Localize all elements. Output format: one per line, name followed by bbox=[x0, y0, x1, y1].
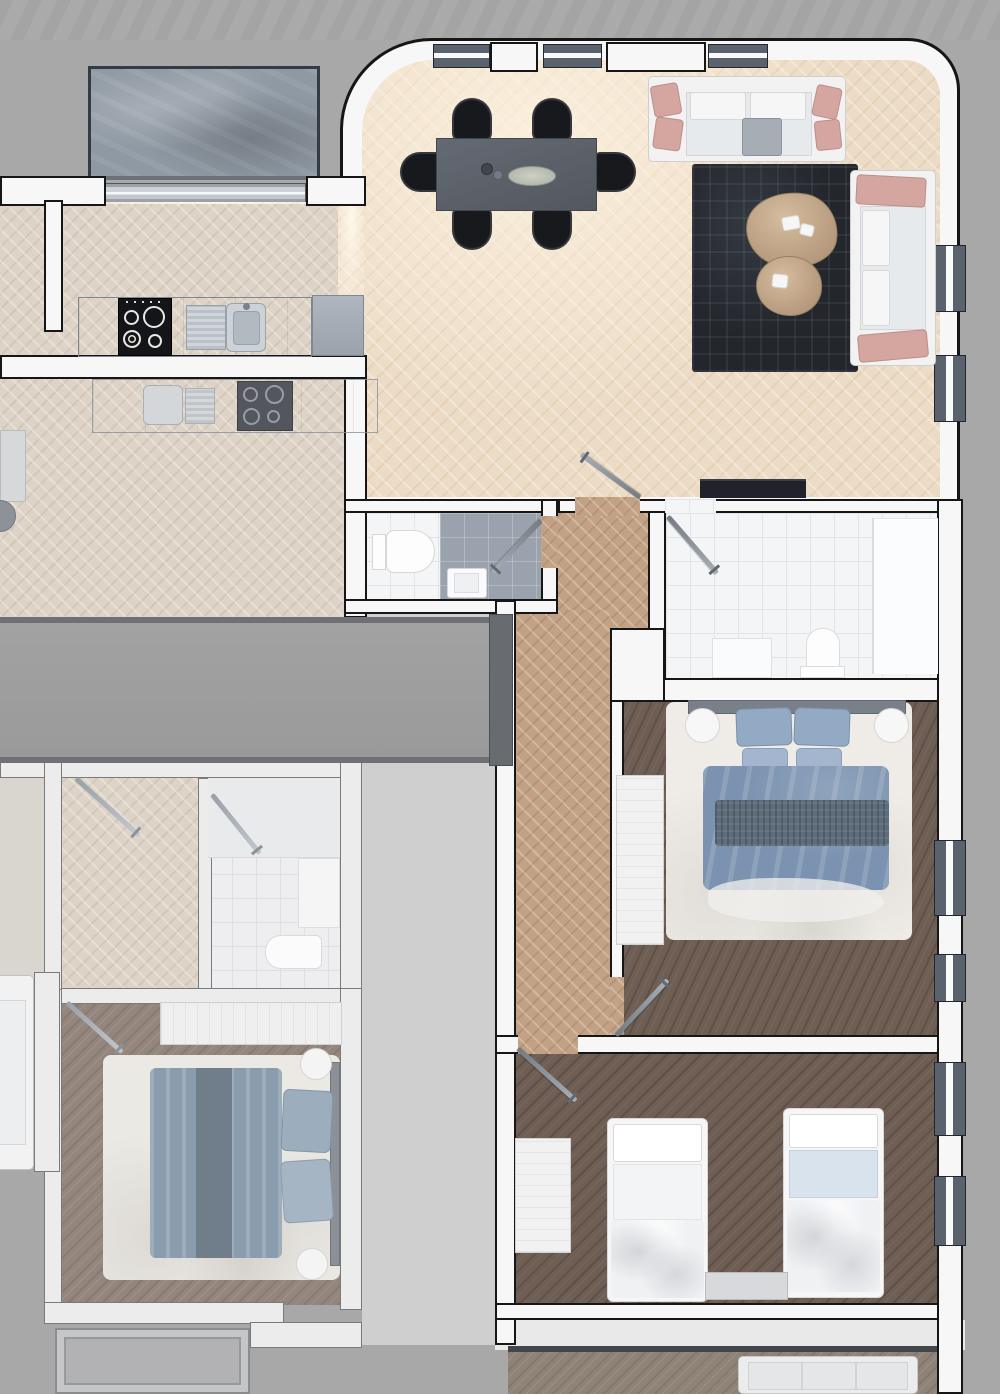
kids-nightstand bbox=[705, 1272, 788, 1300]
kids-bed-right-blanket bbox=[787, 1200, 880, 1292]
bath-vanity bbox=[712, 638, 772, 678]
bottom-unit-sofa-cushions bbox=[748, 1362, 908, 1390]
terrace-stone-floor bbox=[88, 66, 320, 180]
master-foot-sheet bbox=[708, 878, 884, 922]
wall-kids-south bbox=[495, 1303, 962, 1320]
coffee-table-decor-3 bbox=[771, 273, 788, 289]
wall-hall-corner bbox=[610, 628, 665, 702]
floor-plan-canvas bbox=[0, 0, 1000, 1394]
left-nightstand-top bbox=[300, 1048, 332, 1080]
sofa-top-pillow-left-1 bbox=[649, 82, 682, 118]
corridor-floor bbox=[0, 622, 493, 758]
master-knit-throw bbox=[715, 800, 889, 846]
wall-wc-top bbox=[344, 499, 558, 513]
master-window-2 bbox=[934, 954, 966, 1002]
sofa-right-cushion-2 bbox=[862, 270, 890, 326]
dining-chair-bottom-2 bbox=[532, 206, 572, 250]
left-unit-side-floor bbox=[0, 778, 44, 990]
wall-wc-bottom bbox=[344, 599, 558, 614]
left-bath-vanity bbox=[298, 858, 340, 928]
dining-chair-top-2 bbox=[532, 98, 572, 142]
dining-chair-bottom-1 bbox=[452, 206, 492, 250]
wc-washbasin-inner bbox=[454, 573, 479, 593]
serving-platter bbox=[508, 166, 556, 186]
kitchen-glass-wall bbox=[105, 183, 306, 204]
top-wall-pier-1 bbox=[490, 42, 538, 72]
left-wall-sofa-side bbox=[34, 972, 60, 1172]
left-bath-toilet bbox=[265, 935, 322, 969]
sofa-top-pillow-right-2 bbox=[814, 119, 843, 152]
master-nightstand-left bbox=[685, 708, 720, 743]
left-bed-pillow-2 bbox=[280, 1158, 334, 1223]
left-sink-basin bbox=[143, 385, 183, 425]
kids-bed-left-sheet bbox=[613, 1164, 702, 1220]
left-wall-bath-east bbox=[340, 762, 362, 990]
terrace-rail bbox=[88, 176, 320, 180]
master-wardrobe bbox=[616, 775, 664, 945]
corridor-wall-bottom bbox=[0, 757, 493, 763]
sofa-right-cushion-1 bbox=[862, 210, 890, 266]
sofa-top-throw bbox=[742, 118, 782, 156]
wc-toilet-bowl bbox=[386, 530, 435, 573]
tv-sideboard bbox=[700, 479, 806, 498]
kids-bed-left-blanket bbox=[611, 1220, 704, 1298]
bathtub-panel bbox=[872, 518, 938, 674]
sink-drainboard bbox=[186, 305, 226, 350]
sink-basin-inner bbox=[233, 311, 260, 345]
hallway-floor-main bbox=[516, 610, 610, 1037]
burner-3 bbox=[123, 330, 141, 348]
top-wall-pier-2 bbox=[606, 42, 706, 72]
wall-corner-block bbox=[306, 176, 366, 206]
burner-2 bbox=[143, 306, 165, 328]
kitchen-cooktop bbox=[118, 298, 172, 356]
left-bed-duvet-band bbox=[196, 1068, 232, 1258]
sink-faucet bbox=[243, 303, 250, 310]
kids-bed-right-blanket-blue bbox=[789, 1150, 878, 1198]
kids-dresser bbox=[515, 1138, 571, 1253]
master-pillow-1 bbox=[735, 707, 792, 747]
wall-bath-south bbox=[648, 678, 962, 702]
wall-east bbox=[937, 499, 963, 1394]
left-edge-cabinet bbox=[0, 430, 26, 502]
wall-kitchen-divider bbox=[0, 355, 367, 379]
cooktop-knobs bbox=[126, 301, 128, 303]
dining-chair-top-1 bbox=[452, 98, 492, 142]
living-window-east-2 bbox=[934, 355, 966, 422]
master-window-1 bbox=[934, 840, 966, 916]
wc-door-opening bbox=[541, 516, 558, 568]
kids-bed-right-pillow bbox=[789, 1114, 878, 1148]
left-sink-drainboard bbox=[185, 388, 215, 424]
left-wall-bed-east bbox=[340, 988, 362, 1310]
kids-bed-left-pillow bbox=[613, 1124, 702, 1162]
wall-t-stem bbox=[44, 200, 63, 332]
burner-4 bbox=[148, 334, 162, 348]
living-window-east-1 bbox=[934, 245, 966, 312]
living-window-top-3 bbox=[708, 44, 768, 68]
living-door-opening bbox=[575, 497, 640, 516]
bath-toilet-tank bbox=[800, 666, 845, 678]
bathroom-door-opening bbox=[665, 499, 716, 513]
left-nightstand-bottom bbox=[296, 1248, 328, 1280]
left-burner-1 bbox=[243, 387, 258, 402]
living-window-top-2 bbox=[543, 44, 602, 68]
master-pillow-2 bbox=[793, 707, 850, 747]
sofa-top-cushion-1 bbox=[690, 92, 746, 120]
dining-chair-right bbox=[592, 152, 636, 192]
left-kitchen-counter bbox=[92, 379, 378, 433]
left-sofa-cushions bbox=[0, 1000, 26, 1145]
sofa-top-pillow-left-2 bbox=[652, 116, 684, 152]
left-unit-balcony bbox=[55, 1328, 250, 1394]
left-unit-hall-floor bbox=[62, 778, 198, 990]
corridor-end-column bbox=[489, 614, 513, 766]
wc-toilet-tank bbox=[372, 534, 386, 570]
kids-window-1 bbox=[934, 1062, 966, 1136]
left-wall-step bbox=[250, 1322, 362, 1348]
sofa-right-pillow-top bbox=[855, 174, 926, 208]
kids-door-opening bbox=[518, 1035, 578, 1054]
left-burner-4 bbox=[267, 410, 280, 423]
kitchen-opening bbox=[338, 206, 364, 298]
left-bed-wardrobe bbox=[160, 1002, 342, 1045]
table-cup-2 bbox=[493, 170, 503, 180]
left-wall-bed-south bbox=[44, 1302, 284, 1324]
living-window-top-1 bbox=[433, 44, 490, 68]
left-wall-hall-west bbox=[44, 762, 62, 990]
corridor-wall-top bbox=[0, 617, 493, 623]
left-bed-pillow-1 bbox=[280, 1089, 333, 1154]
master-nightstand-right bbox=[874, 708, 909, 743]
background-stripes bbox=[0, 0, 1000, 40]
kids-window-2 bbox=[934, 1176, 966, 1246]
burner-1 bbox=[124, 310, 139, 325]
left-burner-3 bbox=[243, 408, 260, 425]
kitchen-tall-cabinet bbox=[312, 295, 364, 356]
coffee-table-small bbox=[756, 256, 822, 316]
table-cup-1 bbox=[481, 163, 493, 175]
sofa-top-cushion-2 bbox=[750, 92, 806, 120]
left-burner-2 bbox=[265, 385, 284, 404]
bath-toilet-bowl bbox=[806, 628, 840, 670]
